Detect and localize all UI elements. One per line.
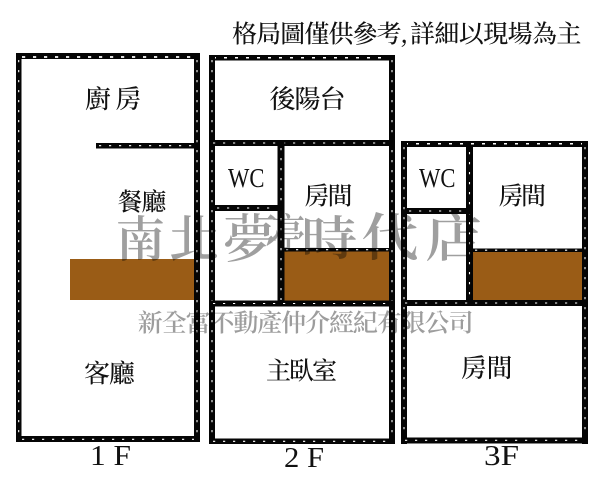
svg-text:1 F: 1 F — [90, 440, 131, 472]
svg-text:3F: 3F — [484, 440, 519, 472]
svg-text:WC: WC — [228, 163, 265, 193]
svg-text:WC: WC — [419, 163, 456, 193]
svg-text:2 F: 2 F — [284, 442, 324, 474]
